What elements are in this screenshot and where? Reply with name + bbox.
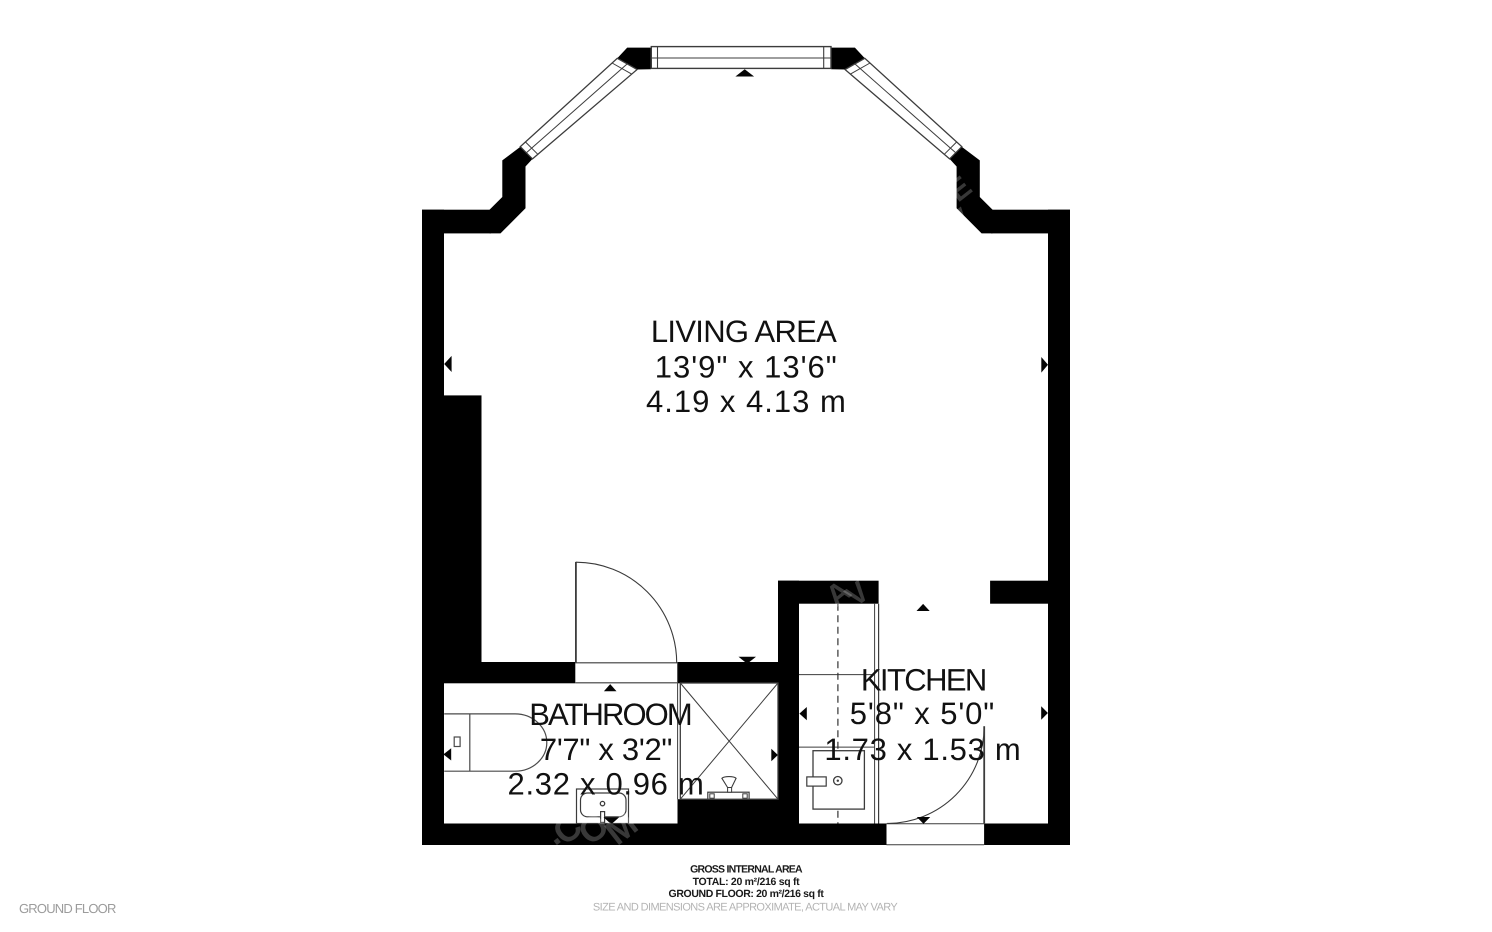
svg-text:2.32 x 0.96 m: 2.32 x 0.96 m [508, 767, 705, 802]
svg-text:BATHROOM: BATHROOM [529, 697, 691, 732]
svg-text:13'9" x 13'6": 13'9" x 13'6" [655, 350, 838, 385]
svg-text:GROSS INTERNAL AREA: GROSS INTERNAL AREA [690, 864, 803, 876]
svg-text:5'8" x 5'0": 5'8" x 5'0" [850, 696, 995, 731]
svg-text:GROUND FLOOR: GROUND FLOOR [19, 901, 116, 916]
svg-text:1.73 x 1.53 m: 1.73 x 1.53 m [824, 732, 1021, 767]
svg-text:SIZE AND DIMENSIONS ARE APPROX: SIZE AND DIMENSIONS ARE APPROXIMATE, ACT… [593, 901, 898, 913]
svg-text:KITCHEN: KITCHEN [861, 662, 986, 697]
svg-text:4.19 x 4.13 m: 4.19 x 4.13 m [646, 384, 847, 419]
svg-text:TOTAL: 20 m²/216 sq ft: TOTAL: 20 m²/216 sq ft [693, 876, 801, 888]
svg-text:LIVING AREA: LIVING AREA [651, 314, 837, 349]
svg-text:7'7" x 3'2": 7'7" x 3'2" [540, 732, 672, 767]
svg-text:GROUND FLOOR: 20 m²/216 sq ft: GROUND FLOOR: 20 m²/216 sq ft [669, 888, 825, 900]
